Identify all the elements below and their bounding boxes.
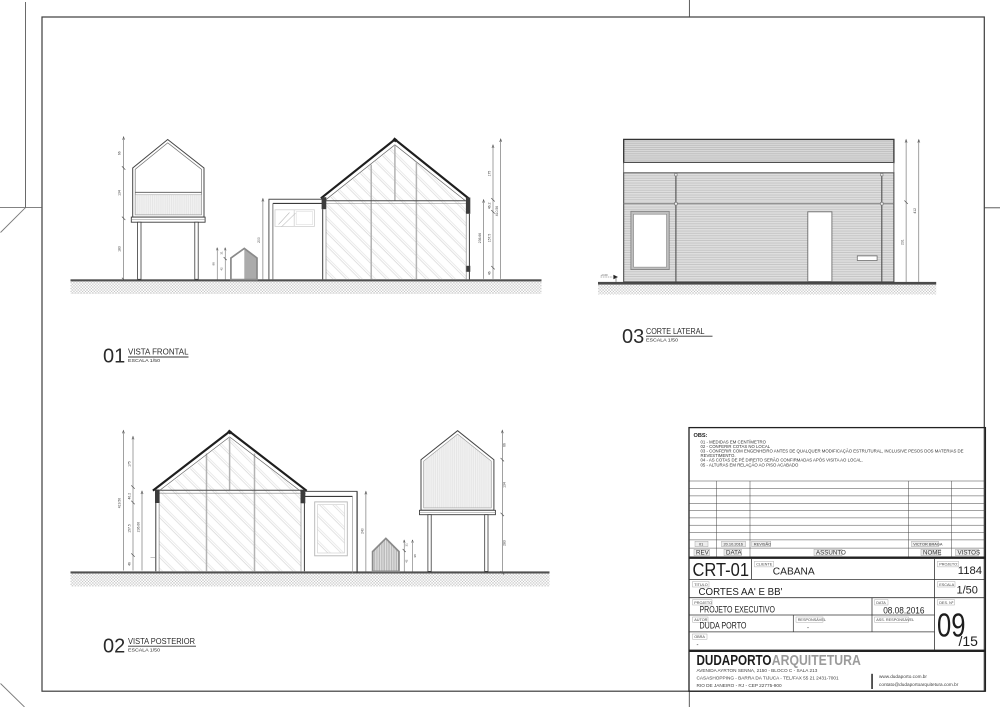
svg-text:DATA: DATA [726,550,742,557]
svg-text:+0.00: +0.00 [601,273,609,277]
svg-text:236.66: 236.66 [136,522,140,532]
svg-text:VISTOS: VISTOS [958,550,981,557]
svg-text:DUDA PORTO: DUDA PORTO [700,621,747,632]
svg-text:PROJETO:: PROJETO: [939,563,958,567]
svg-text:ESCALA 1/50: ESCALA 1/50 [646,337,678,343]
svg-text:ASS. RESPONSÁVEL: ASS. RESPONSÁVEL [876,618,914,622]
svg-text:31: 31 [405,543,409,547]
svg-text:CRT-01: CRT-01 [693,559,750,580]
svg-text:200: 200 [257,237,261,243]
svg-text:183: 183 [118,246,122,252]
svg-text:42: 42 [405,559,409,563]
svg-text:157.5: 157.5 [127,524,131,533]
svg-text:VISTA FRONTAL: VISTA FRONTAL [128,348,189,357]
svg-text:03 - CONFERIR COM ENGENHEIRO A: 03 - CONFERIR COM ENGENHEIRO ANTES DE QU… [701,449,964,454]
svg-text:42: 42 [219,267,223,271]
svg-text:419.56: 419.56 [118,498,122,508]
svg-text:1/50: 1/50 [957,584,978,596]
svg-text:OBRA: OBRA [694,635,705,639]
svg-text:46: 46 [127,562,131,566]
svg-text:REV: REV [696,550,710,557]
svg-text:175: 175 [487,171,491,177]
svg-text:-: - [807,626,809,632]
svg-text:08.08.2016: 08.08.2016 [883,605,924,615]
svg-text:01: 01 [103,346,125,368]
svg-text:46.2: 46.2 [127,493,131,500]
svg-text:01: 01 [699,542,703,547]
svg-text:283: 283 [502,540,506,546]
svg-text:134: 134 [118,190,122,196]
svg-text:VICTOR BRAGA: VICTOR BRAGA [913,542,943,547]
svg-text:98: 98 [413,554,417,558]
svg-text:/15: /15 [959,633,979,649]
svg-text:contato@dudaportoarquitetura.c: contato@dudaportoarquitetura.com.br [879,682,959,687]
svg-text:1184: 1184 [958,565,982,577]
svg-text:RIO DE JANEIRO - RJ - CEP 2277: RIO DE JANEIRO - RJ - CEP 22775-900 [697,683,782,688]
svg-text:ESCALA 1/50: ESCALA 1/50 [128,647,160,653]
svg-text:www.dudaporto.com.br: www.dudaporto.com.br [879,674,927,679]
svg-text:DES. Nº: DES. Nº [939,601,954,605]
svg-text:31: 31 [219,251,223,255]
svg-text:DATA: DATA [876,601,886,605]
svg-text:236.66: 236.66 [478,233,482,243]
svg-text:98: 98 [211,262,215,266]
svg-text:46.2: 46.2 [487,202,491,209]
svg-text:NOME: NOME [923,550,942,557]
svg-text:REVISÃO: REVISÃO [754,542,771,547]
svg-text:05 - ALTURAS EM RELAÇÃO AO PIS: 05 - ALTURAS EM RELAÇÃO AO PISO ACABADO [701,462,799,467]
svg-text:66: 66 [118,151,122,155]
svg-text:03: 03 [622,326,644,348]
svg-text:CORTES AA' E BB': CORTES AA' E BB' [699,587,783,598]
svg-text:46: 46 [487,271,491,275]
svg-text:410.56: 410.56 [495,206,499,216]
svg-text:-: - [697,643,699,649]
svg-text:02: 02 [103,636,125,658]
svg-text:20.10.2016: 20.10.2016 [724,542,743,547]
svg-text:PROJETO EXECUTIVO: PROJETO EXECUTIVO [700,604,776,615]
svg-text:66: 66 [502,443,506,447]
svg-text:ASSUNTO: ASSUNTO [816,550,846,557]
svg-text:VISTA POSTERIOR: VISTA POSTERIOR [128,637,195,646]
svg-text:240: 240 [360,528,364,534]
svg-text:DUDAPORTO: DUDAPORTO [697,653,772,669]
svg-text:157.5: 157.5 [487,234,491,243]
svg-text:CABANA: CABANA [773,567,815,578]
svg-text:OBS:: OBS: [694,433,708,439]
svg-text:CORTE LATERAL: CORTE LATERAL [646,327,705,336]
svg-text:231: 231 [901,239,905,245]
svg-text:ESCALA: ESCALA [939,583,954,587]
svg-text:CASASHOPPING - BARRA DA TIJUCA: CASASHOPPING - BARRA DA TIJUCA - TEL/FAX… [697,676,839,681]
svg-text:175: 175 [127,461,131,467]
svg-text:ARQUITETURA: ARQUITETURA [772,653,861,669]
svg-text:ESCALA 1/50: ESCALA 1/50 [128,358,160,364]
svg-text:412: 412 [913,208,917,214]
svg-text:AVENIDA AYRTON SENNA, 2150 -: AVENIDA AYRTON SENNA, 2150 - BLOCO C - S… [697,668,818,673]
svg-text:RESPONSÁVEL: RESPONSÁVEL [798,618,826,622]
svg-text:CLIENTE: CLIENTE [756,563,773,567]
svg-text:134: 134 [502,482,506,488]
